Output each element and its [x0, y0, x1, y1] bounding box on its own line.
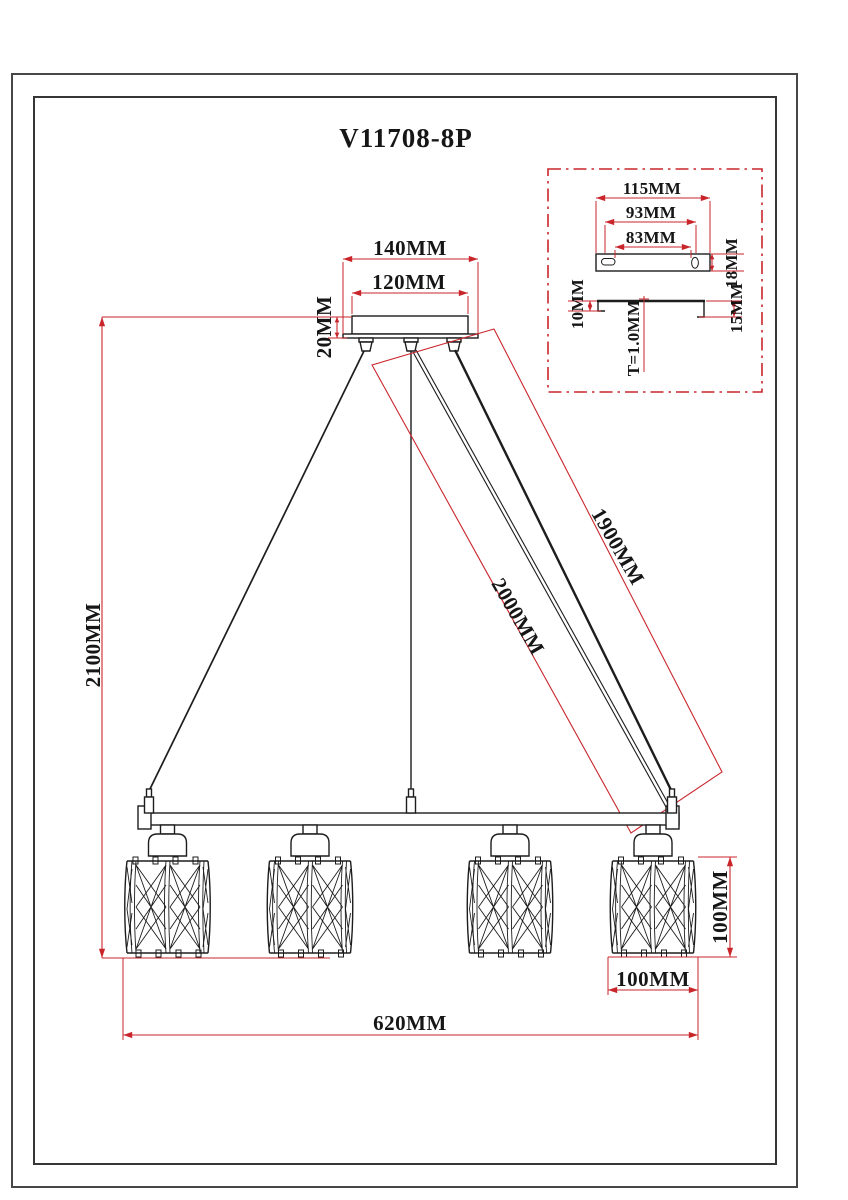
technical-drawing-canvas: V11708-8P 115MM 93MM 83MM 18MM T=1.0MM	[0, 0, 848, 1200]
dim-frame-width: 620MM	[373, 1011, 447, 1035]
cable-length-dimensions: 2000MM 1900MM	[372, 329, 722, 833]
model-number-title: V11708-8P	[339, 123, 473, 153]
shade-1	[125, 857, 211, 957]
dim-flange-right: 15MM	[727, 283, 746, 333]
shade-2	[267, 857, 353, 957]
dim-plate-depth: 18MM	[722, 238, 741, 288]
dim-canopy-height: 20MM	[312, 296, 336, 359]
drawing-sheet: V11708-8P 115MM 93MM 83MM 18MM T=1.0MM	[0, 0, 848, 1200]
dim-plate-width: 115MM	[623, 179, 681, 198]
cable-dim-box	[372, 329, 722, 833]
dim-slot-span-inner: 83MM	[626, 228, 676, 247]
bracket-leg-left	[598, 301, 605, 311]
mounting-plate	[596, 254, 710, 271]
dim-flange-left: 10MM	[568, 279, 587, 329]
dim-thickness: T=1.0MM	[624, 300, 643, 376]
mounting-plate-detail: 115MM 93MM 83MM 18MM T=1.0MM 10MM 15MM	[548, 169, 762, 392]
dim-canopy-outer-width: 140MM	[373, 236, 447, 260]
dim-overall-drop: 2100MM	[81, 603, 105, 688]
dim-slot-span-outer: 93MM	[626, 203, 676, 222]
lamp-assemblies	[125, 825, 696, 957]
wire-left	[149, 351, 364, 791]
frame-bar	[138, 789, 679, 829]
bar-body	[139, 813, 679, 825]
dim-cable-right: 1900MM	[587, 504, 650, 589]
suspension-wires	[149, 350, 672, 807]
canopy-body	[352, 316, 468, 334]
dim-shade-width: 100MM	[616, 967, 690, 991]
overall-drop-dimension: 2100MM	[81, 317, 330, 958]
dim-cable-left: 2000MM	[487, 574, 550, 659]
canopy-dimensions: 140MM 120MM 20MM	[102, 236, 478, 358]
dim-canopy-inner-width: 120MM	[372, 270, 446, 294]
shade-3	[467, 857, 553, 957]
shade-4	[610, 857, 696, 957]
dim-shade-height: 100MM	[708, 870, 732, 944]
bracket-leg-right	[697, 301, 704, 317]
ceiling-canopy	[343, 316, 478, 351]
